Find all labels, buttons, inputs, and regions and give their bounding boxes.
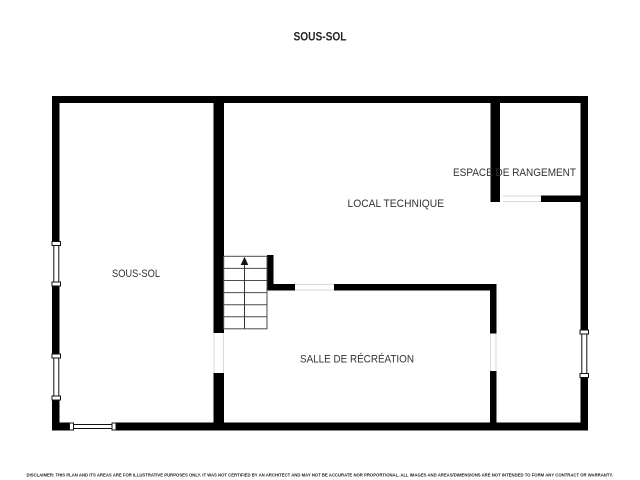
svg-text:DISCLAIMER: THIS PLAN AND ITS: DISCLAIMER: THIS PLAN AND ITS AREAS ARE … [27, 473, 614, 478]
svg-text:SALLE DE RÉCRÉATION: SALLE DE RÉCRÉATION [300, 352, 414, 365]
svg-text:LOCAL TECHNIQUE: LOCAL TECHNIQUE [348, 198, 445, 210]
svg-text:SOUS-SOL: SOUS-SOL [112, 268, 160, 280]
svg-text:ESPACE DE RANGEMENT: ESPACE DE RANGEMENT [453, 167, 576, 179]
svg-text:SOUS-SOL: SOUS-SOL [294, 29, 347, 43]
